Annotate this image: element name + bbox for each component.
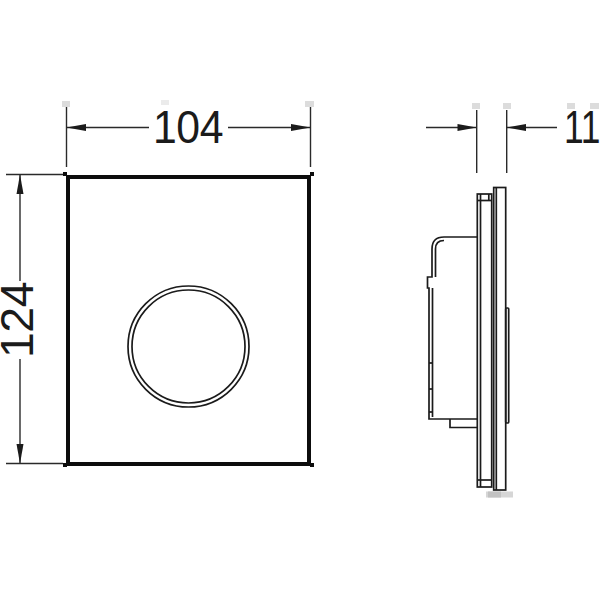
arrowhead-up-icon [17, 175, 24, 195]
arrowhead-left-icon [507, 124, 526, 131]
front-view [63, 172, 314, 467]
side-carrier-plate [477, 194, 491, 487]
arrowhead-right-icon [458, 124, 477, 131]
plate-corner-marks [63, 172, 314, 467]
arrowhead-left-icon [67, 124, 87, 131]
width-dimension: 104 [67, 100, 311, 167]
flush-button-outer-ring [128, 286, 249, 407]
arrowhead-down-icon [17, 444, 24, 464]
depth-dimension: 11 [426, 100, 600, 173]
height-dimension: 124 [0, 175, 63, 464]
height-dimension-label: 124 [0, 282, 43, 358]
front-plate-outline [68, 177, 309, 464]
flush-button-inner-ring [132, 290, 245, 403]
side-view-shadow [486, 492, 513, 498]
height-dimension-label-group: 124 [0, 282, 43, 358]
side-front-tab [506, 308, 509, 423]
technical-drawing: 104 124 11 [0, 0, 600, 600]
drawing-canvas: 104 124 11 [0, 0, 600, 600]
side-view [428, 188, 514, 498]
scan-artifact-nubs [62, 100, 599, 109]
arrowhead-right-icon [291, 124, 311, 131]
width-dimension-label: 104 [153, 100, 223, 153]
side-housing-inner-wall-top [436, 241, 445, 278]
side-housing-bottom-lip [450, 419, 477, 428]
